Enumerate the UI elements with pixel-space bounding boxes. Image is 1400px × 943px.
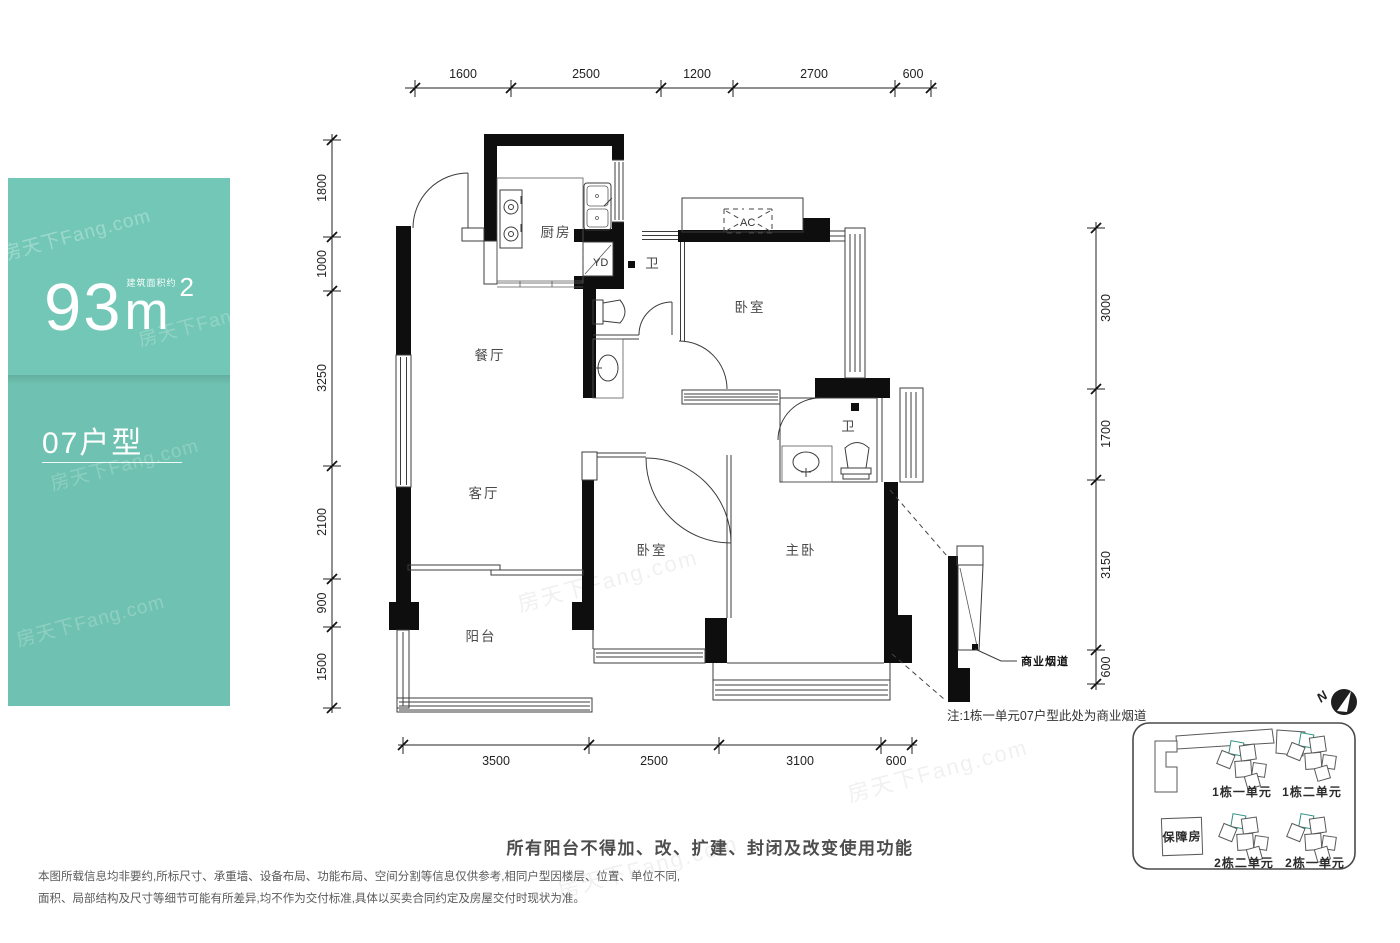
dim-label: 2500: [640, 754, 668, 768]
dim-label: 1800: [315, 174, 329, 202]
dimension-chain-right: 3000 1700 3150 600: [1087, 222, 1113, 690]
north-label: N: [1314, 687, 1331, 705]
flue-note: 注:1栋一单元07户型此处为商业烟道: [947, 708, 1147, 723]
disclaimer: 本图所载信息均非要约,所标尺寸、承重墙、设备布局、功能布局、空间分割等信息仅供参…: [38, 866, 1168, 910]
room-label-master: 主卧: [786, 543, 817, 558]
dim-label: 3500: [482, 754, 510, 768]
dim-label: 1700: [1099, 420, 1113, 448]
dim-label: 600: [1099, 657, 1113, 678]
disclaimer-line-1: 本图所载信息均非要约,所标尺寸、承重墙、设备布局、功能布局、空间分割等信息仅供参…: [38, 866, 1168, 888]
site-building-label: 1栋一单元: [1212, 784, 1272, 799]
room-label-bedroom-top: 卧室: [735, 299, 766, 315]
room-label-kitchen: 厨房: [541, 225, 572, 240]
flue-label: 商业烟道: [1021, 654, 1069, 668]
room-labels: 厨房 餐厅 客厅 阳台 卧室 卧室 主卧 卫 卫: [466, 225, 857, 644]
floorplan-page: 房天下Fang.com 房天下Fang.com 房天下Fang.com 房天下F…: [0, 0, 1400, 943]
site-plan: N 保障房 1栋一单元 1栋二单元 2栋二单元 2栋一单元: [1133, 687, 1357, 870]
room-label-ac: AC: [740, 217, 755, 229]
site-building-label: 1栋二单元: [1282, 784, 1342, 799]
dim-label: 2700: [800, 67, 828, 81]
dim-label: 3100: [786, 754, 814, 768]
room-label-yd: YD: [593, 257, 608, 269]
ac-unit-symbol: AC: [724, 209, 772, 233]
floorplan-drawing: 房天下Fang.com 房天下Fang.com 房天下Fang.com 1600…: [0, 0, 1400, 943]
room-label-balcony: 阳台: [466, 629, 497, 644]
dim-label: 1500: [315, 653, 329, 681]
dim-label: 1000: [315, 250, 329, 278]
dim-label: 600: [886, 754, 907, 768]
room-label-bath-top: 卫: [645, 256, 661, 271]
dim-label: 600: [903, 67, 924, 81]
site-building-label: 2栋一单元: [1285, 855, 1345, 870]
site-support-housing: 保障房: [1161, 817, 1203, 855]
balcony-notice: 所有阳台不得加、改、扩建、封闭及改变使用功能: [430, 834, 990, 859]
dimension-chain-bottom: 3500 2500 3100 600: [398, 737, 917, 768]
site-l-building: [1155, 741, 1177, 792]
flue-shaft-yd: YD: [583, 242, 613, 276]
support-housing-label: 保障房: [1161, 828, 1202, 844]
commercial-flue-detail: 商业烟道 注:1栋一单元07户型此处为商业烟道: [890, 490, 1147, 723]
dim-label: 2500: [572, 67, 600, 81]
dimension-chain-left: 1800 1000 3250 2100 900 1500: [315, 134, 341, 713]
dim-label: 1600: [449, 67, 477, 81]
room-label-living: 客厅: [469, 485, 500, 501]
dim-label: 3250: [315, 364, 329, 392]
dim-label: 1200: [683, 67, 711, 81]
room-label-dining: 餐厅: [475, 348, 506, 363]
dim-label: 3000: [1099, 294, 1113, 322]
dim-label: 2100: [315, 508, 329, 536]
dim-label: 3150: [1099, 551, 1113, 579]
room-label-bedroom-mid: 卧室: [637, 542, 668, 558]
dimension-chain-top: 1600 2500 1200 2700 600: [405, 67, 937, 97]
site-cluster-1-1: [1217, 741, 1267, 790]
room-label-bath-master: 卫: [841, 419, 857, 434]
site-slab-building: [1176, 729, 1274, 749]
north-compass: N: [1314, 687, 1357, 715]
site-building-label: 2栋二单元: [1214, 855, 1274, 870]
dim-label: 900: [315, 593, 329, 614]
svg-text:房天下Fang.com: 房天下Fang.com: [515, 545, 701, 617]
disclaimer-line-2: 面积、局部结构及尺寸等细节可能有所差异,均不作为交付标准,具体以买卖合同约定及房…: [38, 888, 1168, 910]
